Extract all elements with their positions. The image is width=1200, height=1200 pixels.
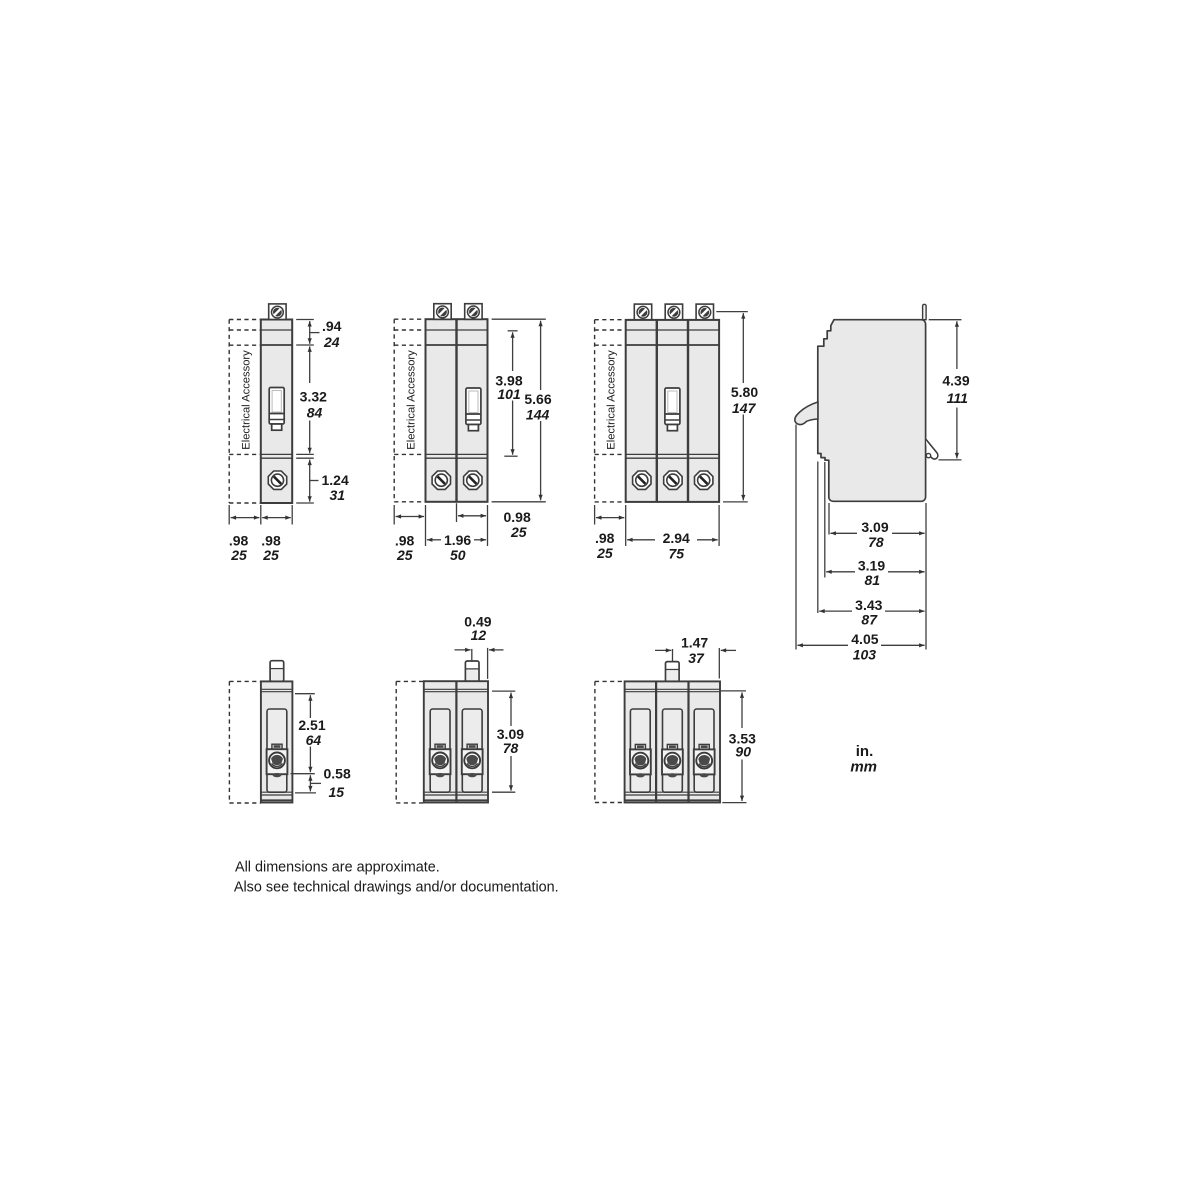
svg-text:25: 25 — [510, 524, 527, 540]
svg-text:Also see technical drawings an: Also see technical drawings and/or docum… — [234, 880, 559, 896]
svg-text:.94: .94 — [322, 318, 342, 334]
svg-text:84: 84 — [307, 405, 323, 421]
svg-text:24: 24 — [323, 334, 340, 350]
svg-text:Electrical Accessory: Electrical Accessory — [241, 350, 253, 450]
svg-text:in.: in. — [856, 743, 874, 760]
svg-text:78: 78 — [868, 534, 884, 550]
svg-text:3.09: 3.09 — [861, 519, 888, 535]
svg-text:4.39: 4.39 — [942, 373, 969, 389]
svg-text:4.05: 4.05 — [851, 631, 878, 647]
svg-text:2.94: 2.94 — [663, 530, 690, 546]
svg-text:0.98: 0.98 — [504, 509, 531, 525]
svg-text:25: 25 — [262, 547, 279, 563]
svg-text:25: 25 — [596, 545, 613, 561]
svg-text:111: 111 — [947, 390, 968, 406]
svg-text:81: 81 — [865, 572, 881, 588]
svg-text:2.51: 2.51 — [298, 717, 325, 733]
svg-text:87: 87 — [861, 612, 878, 628]
svg-text:25: 25 — [230, 547, 247, 563]
svg-text:64: 64 — [306, 732, 322, 748]
svg-text:15: 15 — [329, 784, 345, 800]
svg-text:All dimensions are approximate: All dimensions are approximate. — [235, 860, 440, 876]
svg-text:.98: .98 — [261, 532, 281, 548]
svg-text:1.96: 1.96 — [444, 532, 471, 548]
svg-text:mm: mm — [850, 759, 877, 776]
svg-text:5.66: 5.66 — [524, 391, 551, 407]
svg-text:75: 75 — [669, 546, 685, 562]
svg-text:90: 90 — [735, 744, 751, 760]
svg-text:25: 25 — [396, 547, 413, 563]
svg-text:Electrical Accessory: Electrical Accessory — [606, 350, 618, 450]
svg-text:3.32: 3.32 — [300, 389, 327, 405]
svg-text:5.80: 5.80 — [731, 384, 758, 400]
svg-text:37: 37 — [688, 650, 705, 666]
svg-text:103: 103 — [853, 647, 877, 663]
svg-text:0.58: 0.58 — [324, 766, 351, 782]
svg-text:78: 78 — [503, 740, 519, 756]
svg-text:144: 144 — [526, 406, 550, 422]
svg-text:1.47: 1.47 — [681, 634, 708, 650]
svg-text:31: 31 — [330, 487, 346, 503]
svg-text:12: 12 — [471, 627, 487, 643]
svg-text:50: 50 — [450, 547, 466, 563]
svg-text:3.43: 3.43 — [855, 597, 882, 613]
svg-text:.98: .98 — [395, 532, 415, 548]
svg-text:Electrical Accessory: Electrical Accessory — [406, 350, 418, 450]
svg-text:101: 101 — [497, 386, 521, 402]
svg-text:147: 147 — [732, 400, 757, 416]
svg-text:.98: .98 — [229, 532, 249, 548]
svg-text:.98: .98 — [595, 530, 615, 546]
svg-text:1.24: 1.24 — [322, 472, 349, 488]
svg-text:3.19: 3.19 — [858, 557, 885, 573]
